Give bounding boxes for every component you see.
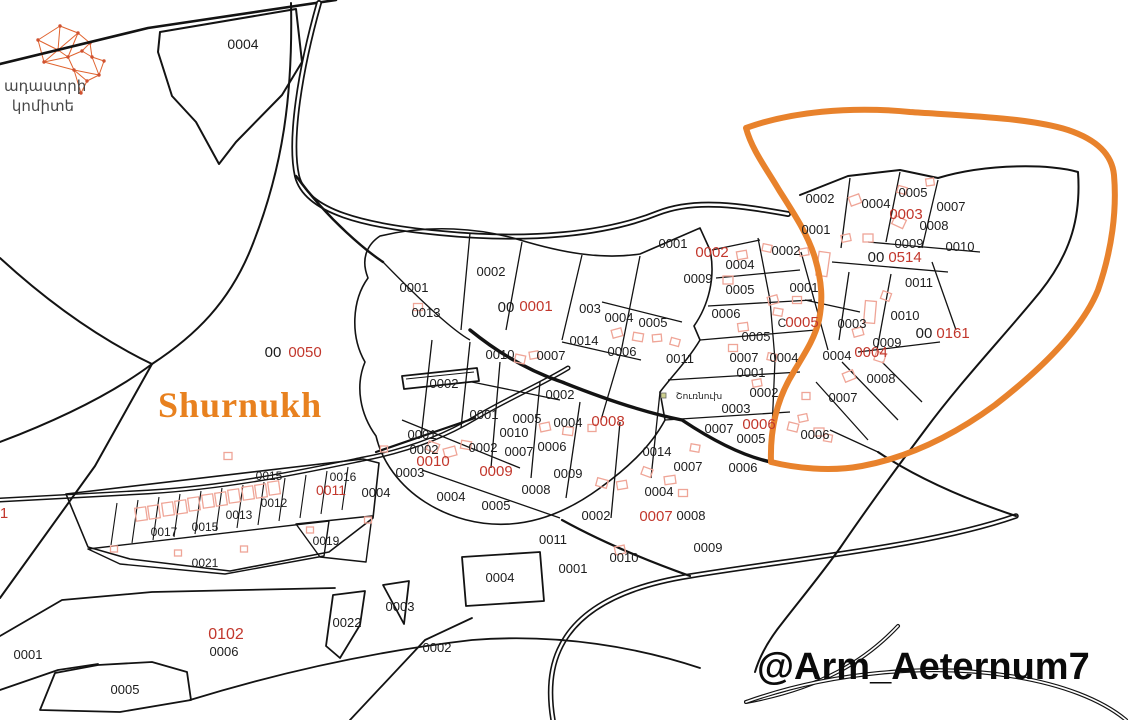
- parcel-boundary: [158, 9, 302, 164]
- parcel-label: 0001: [408, 427, 437, 442]
- parcel-label: 0004: [726, 257, 755, 272]
- parcel-label: 0015: [256, 469, 283, 483]
- parcel-label: 0015: [192, 520, 219, 534]
- building-footprint: [175, 550, 182, 556]
- parcel-label: 0009: [684, 271, 713, 286]
- road-centerline: [294, 3, 788, 237]
- road-line: [0, 258, 152, 364]
- parcel-label: 0005: [899, 185, 928, 200]
- parcel-label: 0012: [261, 496, 288, 510]
- parcel-label: 0014: [643, 444, 672, 459]
- logo-mesh-edge: [58, 26, 60, 50]
- parcel-label: 0004: [605, 310, 634, 325]
- parcel-label: 0003: [386, 599, 415, 614]
- building-footprint: [224, 453, 232, 460]
- parcel-label: 0001: [14, 647, 43, 662]
- parcel-label: 0021: [192, 556, 219, 570]
- parcel-label: 0161: [936, 325, 969, 342]
- parcel-label: 0008: [677, 508, 706, 523]
- parcel-label: 0004: [554, 415, 583, 430]
- parcel-label: 0006: [608, 344, 637, 359]
- parcel-label: 0008: [867, 371, 896, 386]
- parcel-label: 0004: [437, 489, 466, 504]
- building-footprint: [241, 546, 248, 552]
- logo-mesh-node: [90, 55, 93, 58]
- parcel-label: 0007: [705, 421, 734, 436]
- parcel-label: 0011: [905, 275, 933, 290]
- logo-mesh-node: [72, 68, 75, 71]
- parcel-label: 0009: [554, 466, 583, 481]
- building-footprint: [175, 500, 188, 514]
- building-footprint: [842, 370, 856, 382]
- parcel-label: 0004: [854, 344, 887, 361]
- building-footprint: [228, 489, 241, 503]
- parcel-label: 0006: [712, 306, 741, 321]
- parcel-label: 0001: [802, 222, 831, 237]
- logo-text-line1: ադաստրի: [4, 76, 82, 96]
- parcel-label: 0004: [362, 485, 391, 500]
- road-line: [152, 3, 291, 364]
- parcel-label: 0013: [226, 508, 253, 522]
- parcel-label: 0002: [582, 508, 611, 523]
- road-line: [296, 176, 383, 262]
- parcel-label: 0005: [726, 282, 755, 297]
- parcel-label: 0007: [829, 390, 858, 405]
- parcel-label: 0014: [570, 333, 599, 348]
- parcel-label: 0010: [500, 425, 529, 440]
- parcel-label: 0514: [888, 249, 921, 266]
- logo-text-line2: կոմիտե: [4, 96, 82, 116]
- parcel-label: 0002: [477, 264, 506, 279]
- parcel-label: 0006: [729, 460, 758, 475]
- parcel-label: 0002: [806, 191, 835, 206]
- parcel-label: 00: [916, 325, 933, 342]
- parcel-label: 0006: [801, 427, 830, 442]
- building-footprint: [307, 527, 314, 533]
- parcel-label: 1: [0, 505, 8, 522]
- building-footprint: [148, 505, 161, 519]
- parcel-label: 00: [265, 344, 282, 361]
- parcel-label: 003: [579, 301, 601, 316]
- parcel-label: 0004: [862, 196, 891, 211]
- logo-mesh-node: [66, 55, 69, 58]
- parcel-label: 0002: [423, 640, 452, 655]
- parcel-label: 0005: [639, 315, 668, 330]
- logo-mesh-node: [97, 73, 100, 76]
- logo-mesh-edge: [38, 40, 44, 62]
- parcel-label: 00: [498, 299, 515, 316]
- logo-mesh-edge: [82, 51, 92, 57]
- parcel-label: 0005: [513, 411, 542, 426]
- parcel-label: 0004: [227, 36, 258, 52]
- parcel-label: 0007: [505, 444, 534, 459]
- building-footprint: [798, 414, 808, 423]
- parcel-label: 0010: [891, 308, 920, 323]
- parcel-label: 0017: [151, 525, 178, 539]
- building-footprint: [773, 308, 783, 316]
- logo-mesh-edge: [99, 61, 104, 75]
- parcel-label: 0009: [479, 463, 512, 480]
- parcel-label: 0002: [772, 243, 801, 258]
- road-line: [878, 452, 1016, 516]
- building-footprint: [863, 234, 873, 242]
- parcel-label: 0011: [666, 351, 694, 366]
- building-footprint: [616, 480, 627, 490]
- logo-mesh-node: [36, 38, 39, 41]
- parcel-label: 0007: [730, 350, 759, 365]
- building-footprint: [514, 354, 525, 364]
- logo-mesh-edge: [87, 75, 99, 81]
- building-footprint: [242, 486, 255, 500]
- parcel-label: 0102: [208, 626, 244, 643]
- logo-mesh-node: [102, 59, 105, 62]
- parcel-label: 0007: [537, 348, 566, 363]
- parcel-label: 0010: [946, 239, 975, 254]
- watermark-credit: @Arm_Aeternum7: [757, 646, 1090, 689]
- map-symbol-marker: [661, 393, 666, 398]
- parcel-label: 0006: [210, 644, 239, 659]
- parcel-label: 0008: [522, 482, 551, 497]
- parcel-label: 0001: [659, 236, 688, 251]
- parcel-label: 0050: [288, 344, 321, 361]
- parcel-label: 0005: [737, 431, 766, 446]
- logo-mesh-node: [58, 24, 61, 27]
- cadastral-map-page: 0004000050000100130002000001003000400050…: [0, 0, 1143, 720]
- parcel-label: 0004: [770, 350, 799, 365]
- building-footprint: [690, 444, 700, 452]
- logo-mesh-edge: [74, 70, 99, 75]
- parcel-label: 0001: [559, 561, 588, 576]
- parcel-label: 0007: [674, 459, 703, 474]
- parcel-label: 0001: [790, 280, 819, 295]
- building-footprint: [670, 337, 681, 346]
- building-footprint: [652, 334, 662, 342]
- building-footprint: [632, 332, 643, 342]
- parcel-label: 0008: [591, 413, 624, 430]
- parcel-label: 0001: [470, 407, 499, 422]
- logo-mesh-edge: [58, 50, 68, 57]
- parcel-label: 0001: [519, 298, 552, 315]
- parcel-label: 0007: [639, 508, 672, 525]
- logo-mesh-node: [42, 60, 45, 63]
- parcel-label: 0010: [416, 453, 449, 470]
- parcel-label: 0002: [469, 440, 498, 455]
- logo-mesh-edge: [68, 57, 74, 70]
- building-footprint: [848, 194, 861, 206]
- building-footprint: [799, 248, 809, 256]
- parcel-label: 0004: [486, 570, 515, 585]
- logo-mesh-edge: [90, 43, 92, 57]
- logo-mesh-edge: [44, 62, 74, 70]
- parcel-label: 0010: [610, 550, 639, 565]
- parcel-label: 0001: [737, 365, 766, 380]
- logo-mesh-edge: [38, 26, 60, 40]
- parcel-label: 0009: [694, 540, 723, 555]
- road-line: [350, 618, 472, 720]
- parcel-label: 0004: [823, 348, 852, 363]
- building-footprint: [880, 291, 891, 302]
- logo-mesh-edge: [92, 57, 99, 75]
- parcel-label: 0005: [482, 498, 511, 513]
- building-footprint: [787, 422, 799, 432]
- parcel-label: 0007: [937, 199, 966, 214]
- building-footprint: [611, 328, 623, 338]
- parcel-label: 0001: [400, 280, 429, 295]
- logo-mesh-edge: [38, 40, 58, 50]
- parcel-label: 0019: [313, 534, 340, 548]
- road-line: [0, 588, 335, 636]
- parcel-label: 0002: [430, 376, 459, 391]
- parcel-label: 0002: [546, 387, 575, 402]
- parcel-label: 0004: [645, 484, 674, 499]
- building-footprint: [679, 490, 688, 497]
- parcel-label: 0022: [333, 615, 362, 630]
- parcel-label: 0008: [920, 218, 949, 233]
- parcel-label: 0013: [412, 305, 441, 320]
- parcel-label: 0006: [538, 439, 567, 454]
- building-footprint: [793, 297, 802, 304]
- parcel-label: 0005: [742, 329, 771, 344]
- parcel-label: 0005: [785, 314, 818, 331]
- parcel-label: 0003: [722, 401, 751, 416]
- building-footprint: [162, 502, 175, 516]
- road-line: [294, 3, 788, 237]
- road-line: [0, 364, 152, 598]
- cadastre-committee-logo-text: ադաստրի կոմիտե: [4, 76, 82, 116]
- parcel-label: 0010: [486, 347, 515, 362]
- logo-mesh-node: [80, 49, 83, 52]
- logo-mesh-node: [76, 31, 79, 34]
- building-footprint: [802, 393, 810, 400]
- logo-mesh-edge: [60, 26, 78, 33]
- parcel-label: 00: [868, 249, 885, 266]
- parcel-label: Շուռնուխ: [676, 391, 722, 401]
- parcel-label: 0011: [539, 532, 567, 547]
- parcel-label: 0002: [750, 385, 779, 400]
- building-footprint: [767, 295, 779, 305]
- parcel-label: 0003: [889, 206, 922, 223]
- cadastral-map: 0004000050000100130002000001003000400050…: [0, 0, 1143, 720]
- building-footprint: [202, 494, 215, 508]
- parcel-label: 0011: [316, 482, 346, 498]
- town-name-label: Shurnukh: [158, 384, 322, 426]
- parcel-label: 0002: [695, 244, 728, 261]
- parcel-boundary: [383, 233, 682, 518]
- parcel-label: 0003: [838, 316, 867, 331]
- parcel-label: 0005: [111, 682, 140, 697]
